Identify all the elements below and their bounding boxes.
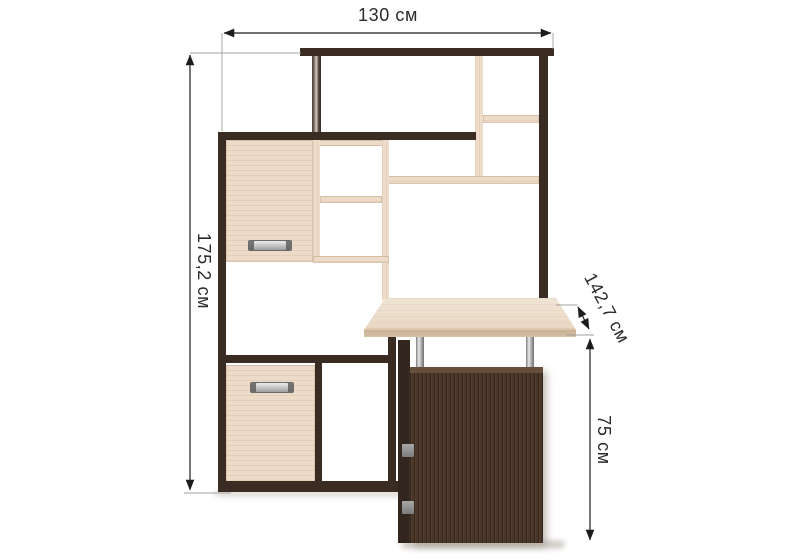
height-label: 175,2 см xyxy=(194,211,214,331)
dimension-lines xyxy=(0,0,800,560)
canvas: { "dimension_labels": { "width": "130 см… xyxy=(0,0,800,560)
dimension-arrows xyxy=(190,33,590,540)
desk-height-label: 75 см xyxy=(594,395,614,485)
guide-lines xyxy=(184,33,594,493)
depth-arrow xyxy=(578,307,589,329)
width-label: 130 см xyxy=(328,5,448,25)
